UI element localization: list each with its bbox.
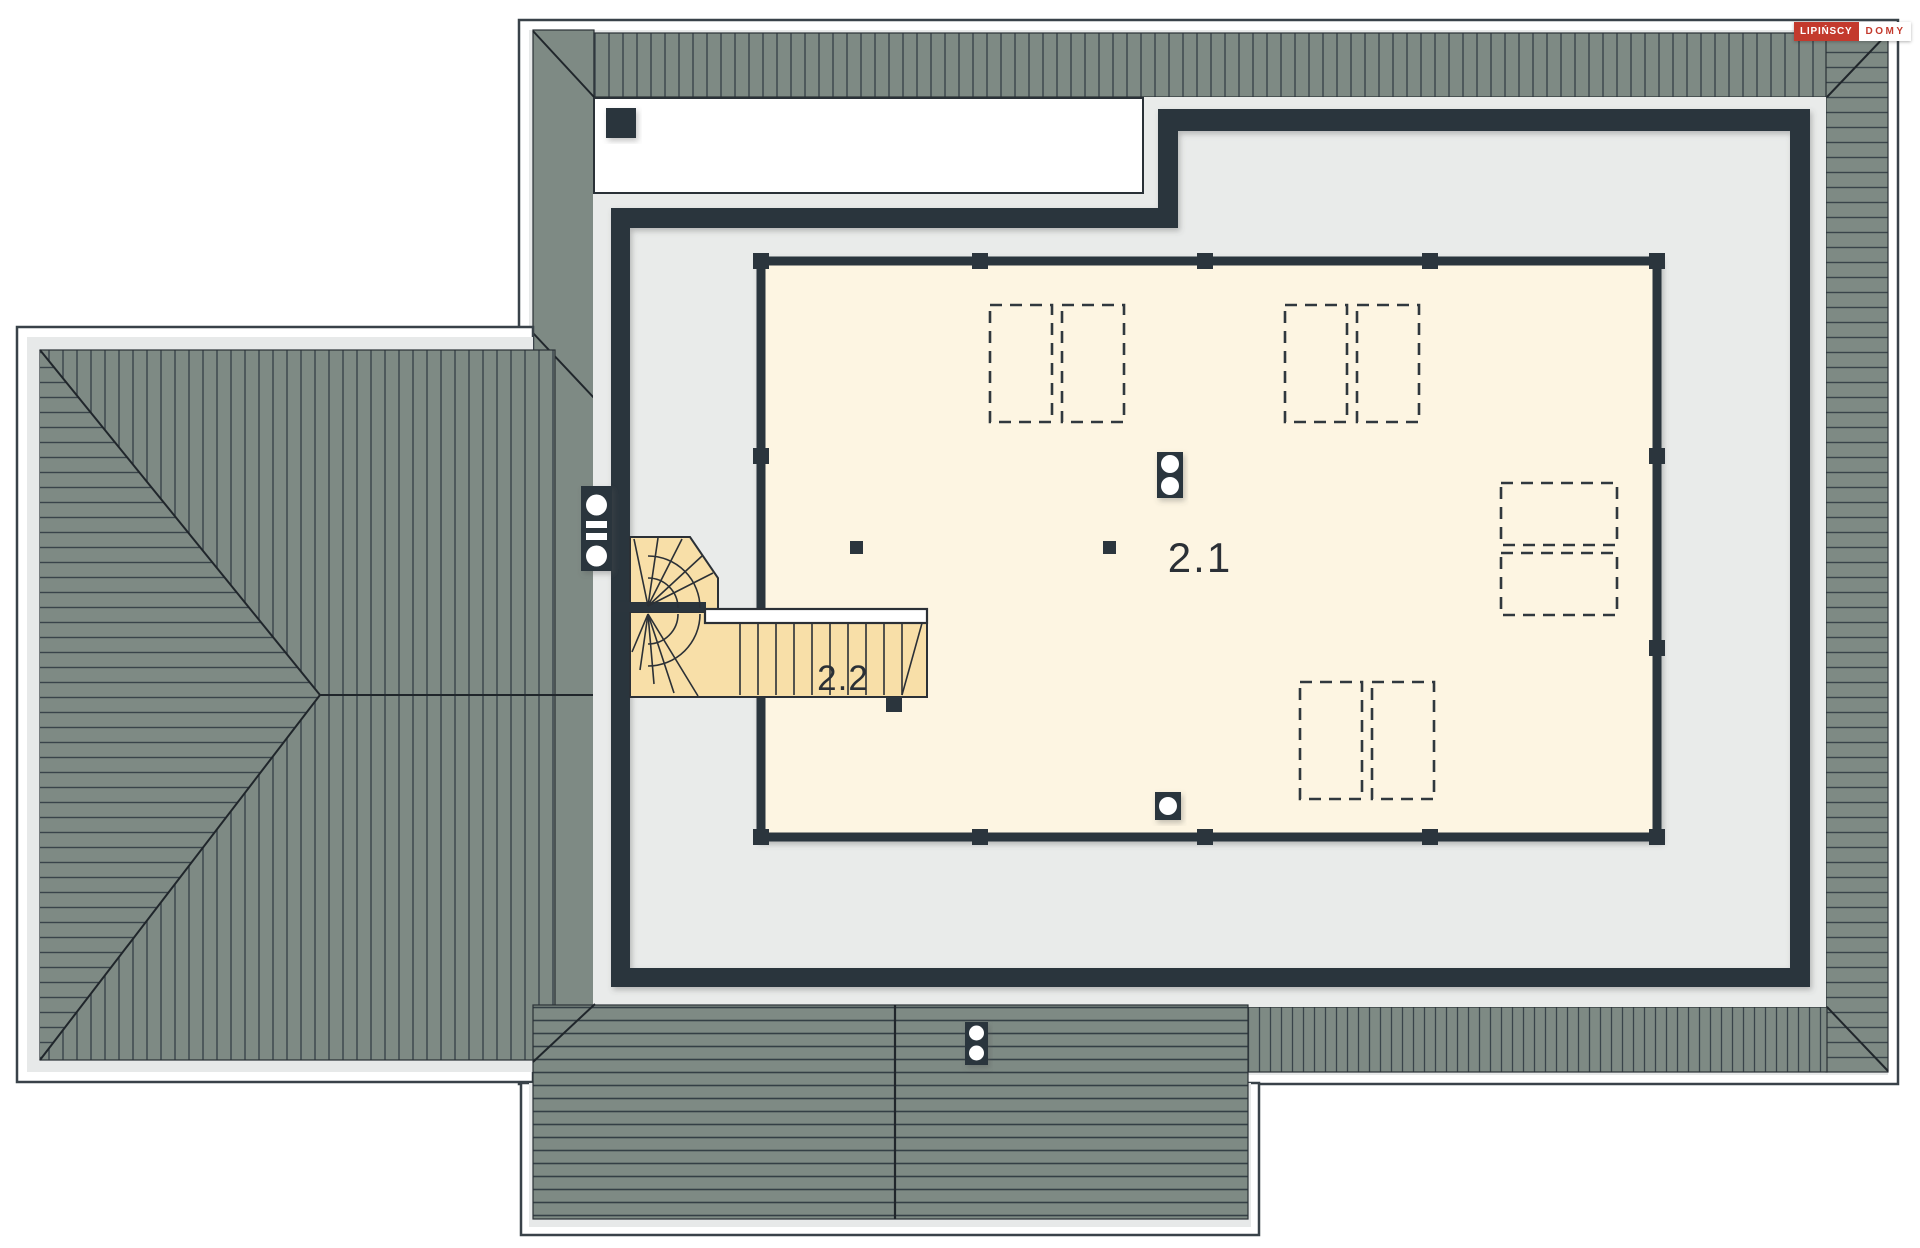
chimney-flue-w1: [586, 495, 607, 516]
post-sw: [753, 829, 769, 845]
post-bottom-3: [1422, 829, 1438, 845]
room-2-1-label: 2.1: [1168, 534, 1232, 581]
roof-south-band: [1248, 1007, 1827, 1072]
post-floor-right: [1103, 541, 1116, 554]
dormer-chimney-icon: [606, 108, 636, 138]
floor-plan-drawing: 2.1: [0, 0, 1920, 1248]
post-bottom-1: [972, 829, 988, 845]
brand-logo-secondary: DOMY: [1859, 22, 1911, 41]
bottom-extension-roof: [521, 1004, 1259, 1235]
chimney-flue-3: [1159, 797, 1177, 815]
attic-interior: 2.1: [581, 97, 1826, 1007]
post-nw: [753, 253, 769, 269]
chimney-vent-w1: [586, 521, 607, 528]
chimney-flue-w2: [586, 546, 607, 567]
stair-lower-flight: [630, 612, 927, 697]
brand-logo: LIPIŃSCY DOMY: [1794, 22, 1911, 41]
west-wall-chimney: [581, 486, 612, 571]
room-2-2-label: 2.2: [817, 659, 869, 698]
post-west-1: [753, 448, 769, 464]
post-ne: [1649, 253, 1665, 269]
chimney-flue-2: [1161, 477, 1179, 495]
post-floor-left: [850, 541, 863, 554]
brand-logo-primary: LIPIŃSCY: [1794, 22, 1859, 41]
post-se: [1649, 829, 1665, 845]
chimney-flue-e2: [969, 1046, 984, 1061]
stair-landing-wall: [611, 602, 706, 612]
post-top-3: [1422, 253, 1438, 269]
extension-roof-slopes: [533, 1005, 1248, 1219]
chimney-vent-w2: [586, 533, 607, 540]
extension-chimney: [965, 1022, 988, 1065]
room-2-1: 2.1: [753, 253, 1665, 845]
stair-newel-post: [886, 697, 902, 712]
left-wing-roof: [17, 327, 593, 1082]
post-east-1: [1649, 448, 1665, 464]
post-top-1: [972, 253, 988, 269]
roof-north-band: [594, 33, 1827, 97]
roof-east-band: [1826, 33, 1888, 1072]
post-top-2: [1197, 253, 1213, 269]
chimney-flue-1: [1161, 455, 1179, 473]
chimney-flue-e1: [969, 1026, 984, 1041]
stair-handrail: [705, 609, 927, 623]
post-east-2: [1649, 640, 1665, 656]
dormer-roof-panel: [594, 98, 1143, 193]
post-bottom-2: [1197, 829, 1213, 845]
